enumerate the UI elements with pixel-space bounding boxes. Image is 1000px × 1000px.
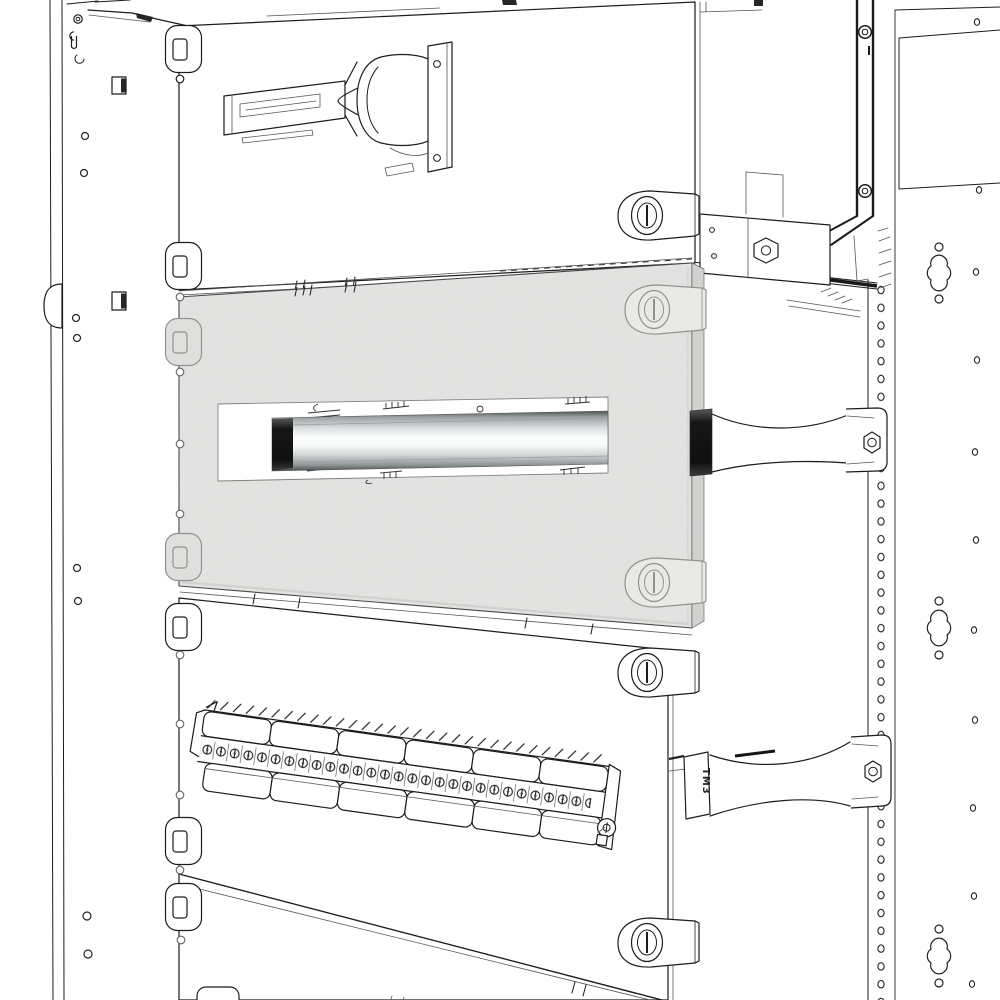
hex-bolt	[865, 761, 881, 782]
panel-clip	[166, 243, 202, 290]
panel-clip	[166, 319, 202, 366]
top-mounting-bracket	[700, 172, 852, 303]
keyhole-slot	[70, 32, 77, 49]
din-rail-end-block	[690, 409, 712, 476]
din-rail-bracket-lower: TM3	[669, 735, 891, 819]
hole-column	[874, 281, 888, 1000]
panel-clip	[166, 884, 202, 931]
hex-bolt	[754, 238, 778, 263]
upper-blind-panel	[166, 2, 701, 295]
panel-latch	[618, 918, 699, 967]
technical-drawing: TM3	[0, 0, 1000, 1000]
lower-panel	[166, 592, 700, 1000]
panel-clip	[166, 818, 202, 865]
right-frame-upright	[857, 7, 1000, 1000]
corner-screw	[859, 185, 872, 198]
frame-oval-knockout	[44, 284, 62, 328]
corner-screw	[859, 26, 872, 39]
din-rail	[272, 411, 608, 471]
panel-clip	[166, 604, 202, 651]
panel-clip	[197, 987, 239, 1000]
din-rail-window-panel	[166, 258, 713, 628]
corner-hatching	[878, 228, 891, 288]
panel-latch	[625, 285, 706, 334]
left-frame-upright	[44, 0, 126, 1000]
panel-clip	[166, 26, 202, 73]
panel-latch	[625, 558, 706, 607]
hex-bolt	[864, 432, 880, 453]
drawing-canvas: TM3	[0, 0, 1000, 1000]
bracket-marking: TM3	[700, 768, 711, 795]
din-rail-end-cap	[272, 418, 293, 471]
frame-corner-profile	[820, 0, 891, 288]
sparse-holes	[969, 19, 981, 988]
fixing-holes	[73, 133, 93, 959]
upright-window-cutout	[899, 30, 1000, 189]
din-rail-bracket-upper	[712, 408, 887, 472]
panel-clip	[166, 534, 202, 581]
quatrefoil-slot	[927, 243, 950, 987]
panel-latch	[618, 191, 699, 240]
lock-mounting-plate	[428, 42, 452, 172]
panel-latch	[618, 648, 699, 697]
